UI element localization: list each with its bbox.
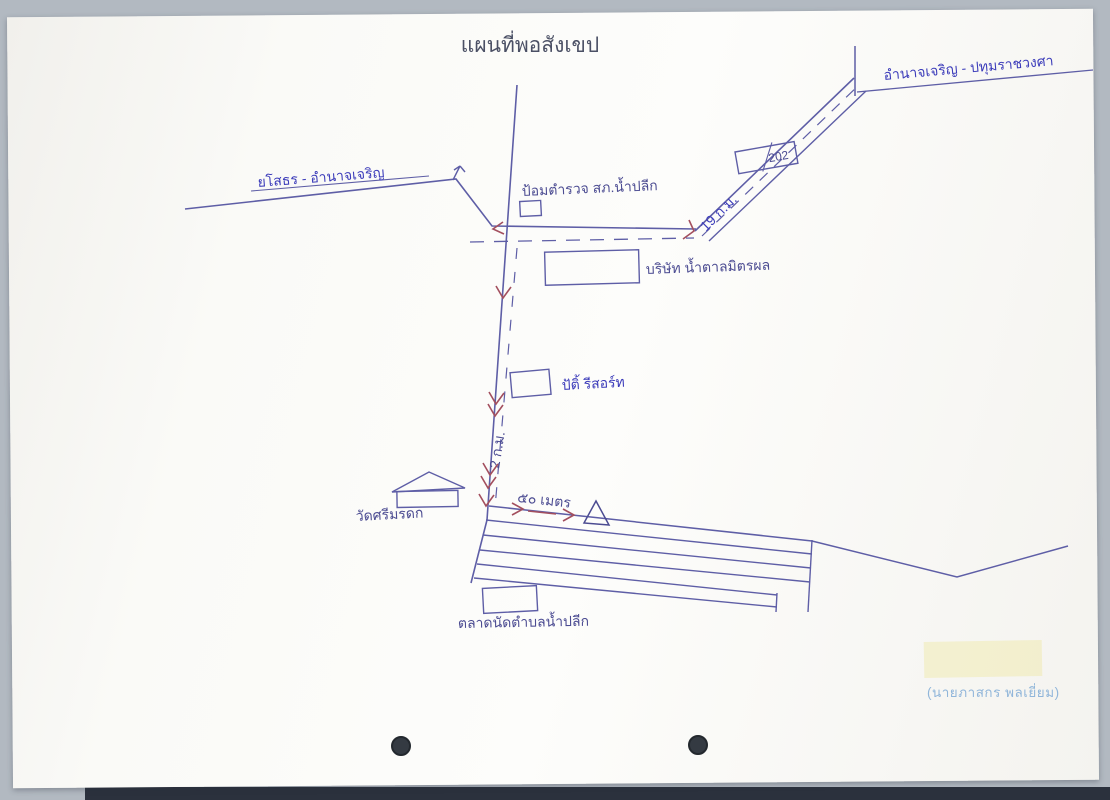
road-left-label: ยโสธร - อำนาจเจริญ xyxy=(257,164,385,190)
road-topright-label: อำนาจเจริญ - ปทุมราชวงศา xyxy=(883,52,1054,84)
road-bottom-line-2 xyxy=(486,520,812,554)
road-bottom-line-4 xyxy=(480,550,810,582)
police-box: ป้อมตำรวจ สภ.น้ำปลีก xyxy=(520,175,658,216)
market: ตลาดนัดตำบลน้ำปลีก xyxy=(458,586,589,631)
road-bottom-line-5 xyxy=(477,564,777,595)
arrowhead-6 xyxy=(481,476,496,488)
resort: ปัติ้ รีสอร์ท xyxy=(510,369,625,397)
distance-50m-label: ๕๐ เมตร xyxy=(517,489,573,511)
route-sign-number: 202 xyxy=(767,148,789,165)
road-left: ยโสธร - อำนาจเจริญ xyxy=(185,164,696,229)
road-topright: อำนาจเจริญ - ปทุมราชวงศา xyxy=(855,46,1093,96)
sugar-company: บริษัท น้ำตาลมิตรผล xyxy=(545,250,771,285)
arrowhead-1 xyxy=(493,222,504,234)
market-building xyxy=(482,586,537,614)
hole-punch-left xyxy=(392,737,410,755)
junction-dashed-line xyxy=(470,238,694,242)
road-bottom-line-3 xyxy=(483,535,811,568)
location-triangle-marker xyxy=(584,501,609,525)
temple-roof xyxy=(392,472,465,492)
road-bottom-end-tick xyxy=(776,593,777,612)
resort-building xyxy=(510,369,551,397)
road-bottom-line-1 xyxy=(489,506,1068,577)
sugar-company-building xyxy=(545,250,640,285)
market-label: ตลาดนัดตำบลน้ำปลีก xyxy=(458,611,589,631)
scanned-page: แผนที่พอสังเขป ยโสธร - อำนาจเจริญ 19 ก.ม… xyxy=(0,0,1110,800)
road-left-end-tick xyxy=(453,166,465,180)
route-sign-202: 202 xyxy=(734,139,798,176)
police-box-building xyxy=(520,200,542,216)
temple: วัดศรีมรดก xyxy=(355,472,465,524)
distance-2km-label: 2 ก.ม. xyxy=(486,430,508,469)
sugar-company-label: บริษัท น้ำตาลมิตรผล xyxy=(645,255,770,277)
sketch-map: แผนที่พอสังเขป ยโสธร - อำนาจเจริญ 19 ก.ม… xyxy=(0,0,1110,800)
distance-19km-label: 19 ก.ม. xyxy=(697,191,740,234)
road-diagonal-line-b xyxy=(709,91,866,241)
road-bottom: ๕๐ เมตร xyxy=(474,489,1068,612)
arrowhead-7 xyxy=(479,494,494,506)
paper-stain xyxy=(924,640,1043,678)
police-box-label: ป้อมตำรวจ สภ.น้ำปลีก xyxy=(521,175,658,199)
hole-punch-right xyxy=(689,736,707,754)
road-bottom-end-line xyxy=(808,540,812,612)
page-title: แผนที่พอสังเขป xyxy=(461,30,599,57)
temple-label: วัดศรีมรดก xyxy=(355,504,423,524)
resort-label: ปัติ้ รีสอร์ท xyxy=(561,372,625,393)
road-bottom-line-6 xyxy=(474,578,777,607)
signature-name: (นายภาสกร พลเยี่ยม) xyxy=(927,683,1060,700)
